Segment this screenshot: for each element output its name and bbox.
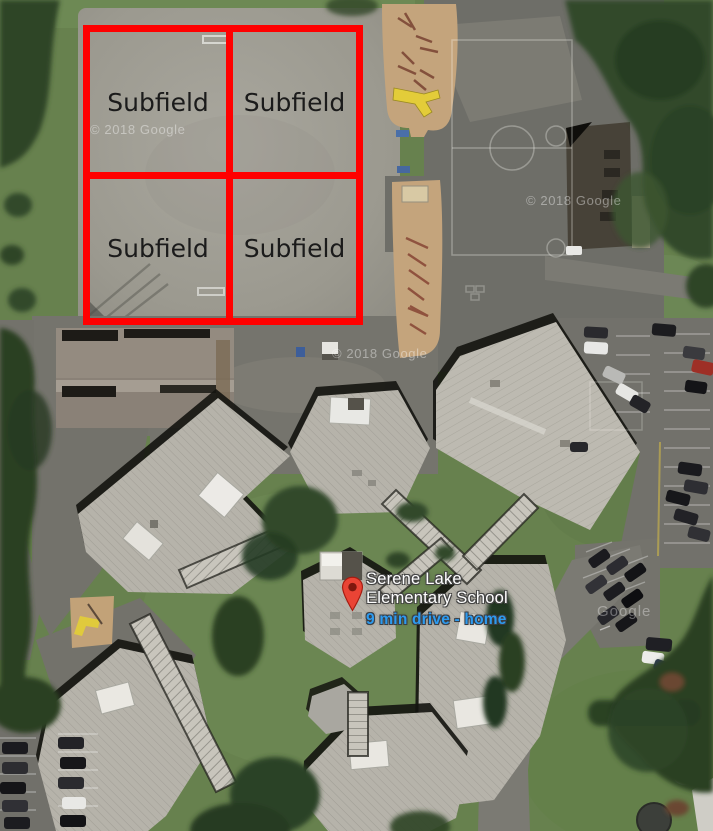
subfield-label: Subfield bbox=[107, 234, 209, 263]
car bbox=[0, 782, 26, 794]
drive-time-label[interactable]: 9 min drive - home bbox=[366, 610, 508, 629]
subfield-label: Subfield bbox=[244, 88, 346, 117]
map-viewport[interactable]: © 2018 Google © 2018 Google © 2018 Googl… bbox=[0, 0, 713, 831]
car bbox=[60, 757, 86, 769]
car bbox=[2, 742, 28, 754]
car bbox=[58, 777, 84, 789]
car bbox=[570, 442, 588, 452]
car bbox=[652, 323, 677, 337]
car bbox=[4, 817, 30, 829]
car-white bbox=[584, 341, 609, 354]
place-name-line2: Elementary School bbox=[366, 589, 508, 608]
bin bbox=[296, 347, 305, 357]
playground-south bbox=[392, 180, 442, 358]
walkway bbox=[348, 692, 368, 756]
car bbox=[645, 637, 672, 652]
car-white bbox=[62, 797, 86, 809]
bench bbox=[397, 166, 410, 173]
subfield-label: Subfield bbox=[244, 234, 346, 263]
car-white bbox=[566, 246, 582, 255]
subfield-grid-overlay: Subfield Subfield Subfield Subfield bbox=[83, 25, 363, 325]
subfield-cell-bottom-left[interactable]: Subfield bbox=[90, 179, 226, 318]
car bbox=[584, 326, 609, 338]
subfield-cell-bottom-right[interactable]: Subfield bbox=[233, 179, 356, 318]
utility-box bbox=[322, 342, 338, 354]
place-label[interactable]: Serene Lake Elementary School 9 min driv… bbox=[366, 570, 508, 629]
subfield-cell-top-right[interactable]: Subfield bbox=[233, 32, 356, 172]
grid-divider-horizontal bbox=[90, 172, 356, 179]
place-name-line1: Serene Lake bbox=[366, 570, 508, 589]
subfield-cell-top-left[interactable]: Subfield bbox=[90, 32, 226, 172]
car bbox=[58, 737, 84, 749]
map-pin-icon[interactable] bbox=[341, 576, 364, 613]
car bbox=[2, 762, 28, 774]
bench bbox=[396, 130, 409, 137]
car bbox=[60, 815, 86, 827]
subfield-label: Subfield bbox=[107, 88, 209, 117]
car bbox=[2, 800, 28, 812]
